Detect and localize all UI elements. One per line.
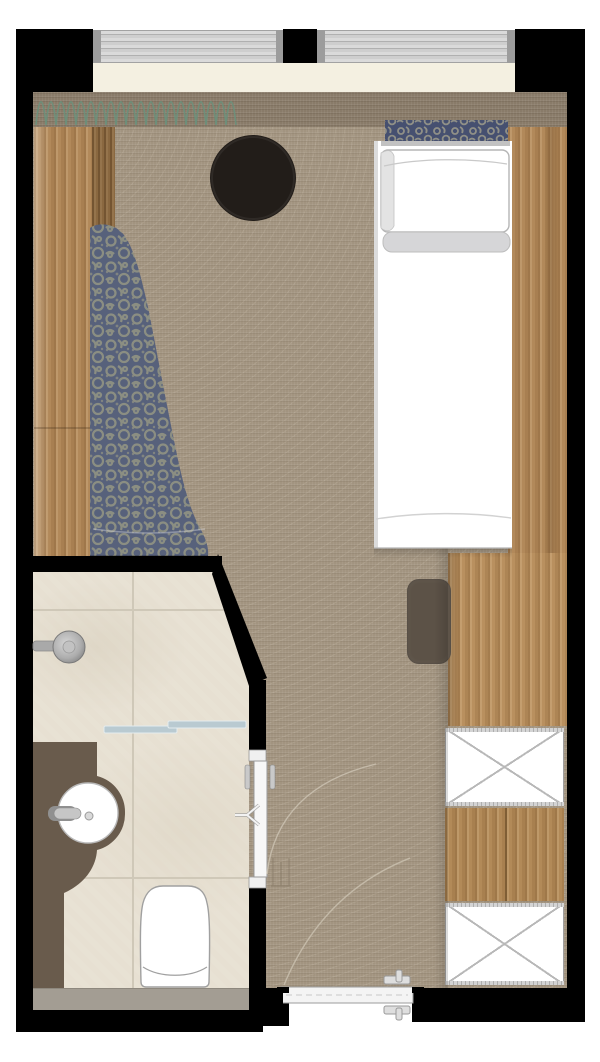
window-right	[325, 30, 507, 63]
wall-window-mullion	[283, 29, 317, 63]
floor-plan	[0, 0, 600, 1062]
closet-hatch	[445, 728, 564, 732]
wall-bathroom-right-lower	[249, 886, 266, 988]
chaise-back-panel	[92, 127, 115, 228]
closet-door-split	[505, 808, 507, 901]
wall-bathroom-top	[33, 556, 222, 572]
wall-bottom-right	[412, 988, 585, 1022]
shadow-wardrobe-column	[434, 548, 448, 988]
wall-left	[16, 92, 33, 1032]
tile-grout	[132, 572, 134, 988]
window-frame	[317, 30, 325, 63]
window-frame	[276, 30, 283, 63]
carpet-dark-band	[33, 92, 567, 127]
wood-seam	[34, 427, 92, 429]
wall-right	[567, 92, 585, 1022]
closet-hatch	[445, 903, 564, 907]
wall-bottom-bathroom	[16, 1010, 263, 1032]
wall-bathroom-right-upper	[249, 680, 266, 752]
window-sill	[93, 63, 515, 92]
shadow-bed-foot	[374, 548, 512, 558]
window-frame	[93, 30, 101, 63]
right-wardrobe-panel	[508, 127, 567, 553]
closet-shelf-box	[445, 728, 564, 806]
desk	[448, 553, 567, 726]
tile-grout	[33, 609, 229, 611]
closet-shelf-box	[445, 903, 564, 985]
window-frame	[507, 30, 515, 63]
window-left	[101, 30, 276, 63]
left-wardrobe-panel	[34, 127, 92, 556]
bathroom-threshold-strip	[33, 988, 249, 1010]
wall-top-right	[515, 29, 585, 92]
wall-entry-left	[249, 988, 289, 1026]
closet-hatch	[445, 981, 564, 985]
wall-top-left	[16, 29, 93, 92]
bathroom-floor	[33, 572, 249, 988]
closet-hatch	[445, 802, 564, 806]
tile-grout	[33, 877, 249, 879]
closet-wood-section	[445, 808, 564, 901]
bed	[374, 141, 512, 548]
